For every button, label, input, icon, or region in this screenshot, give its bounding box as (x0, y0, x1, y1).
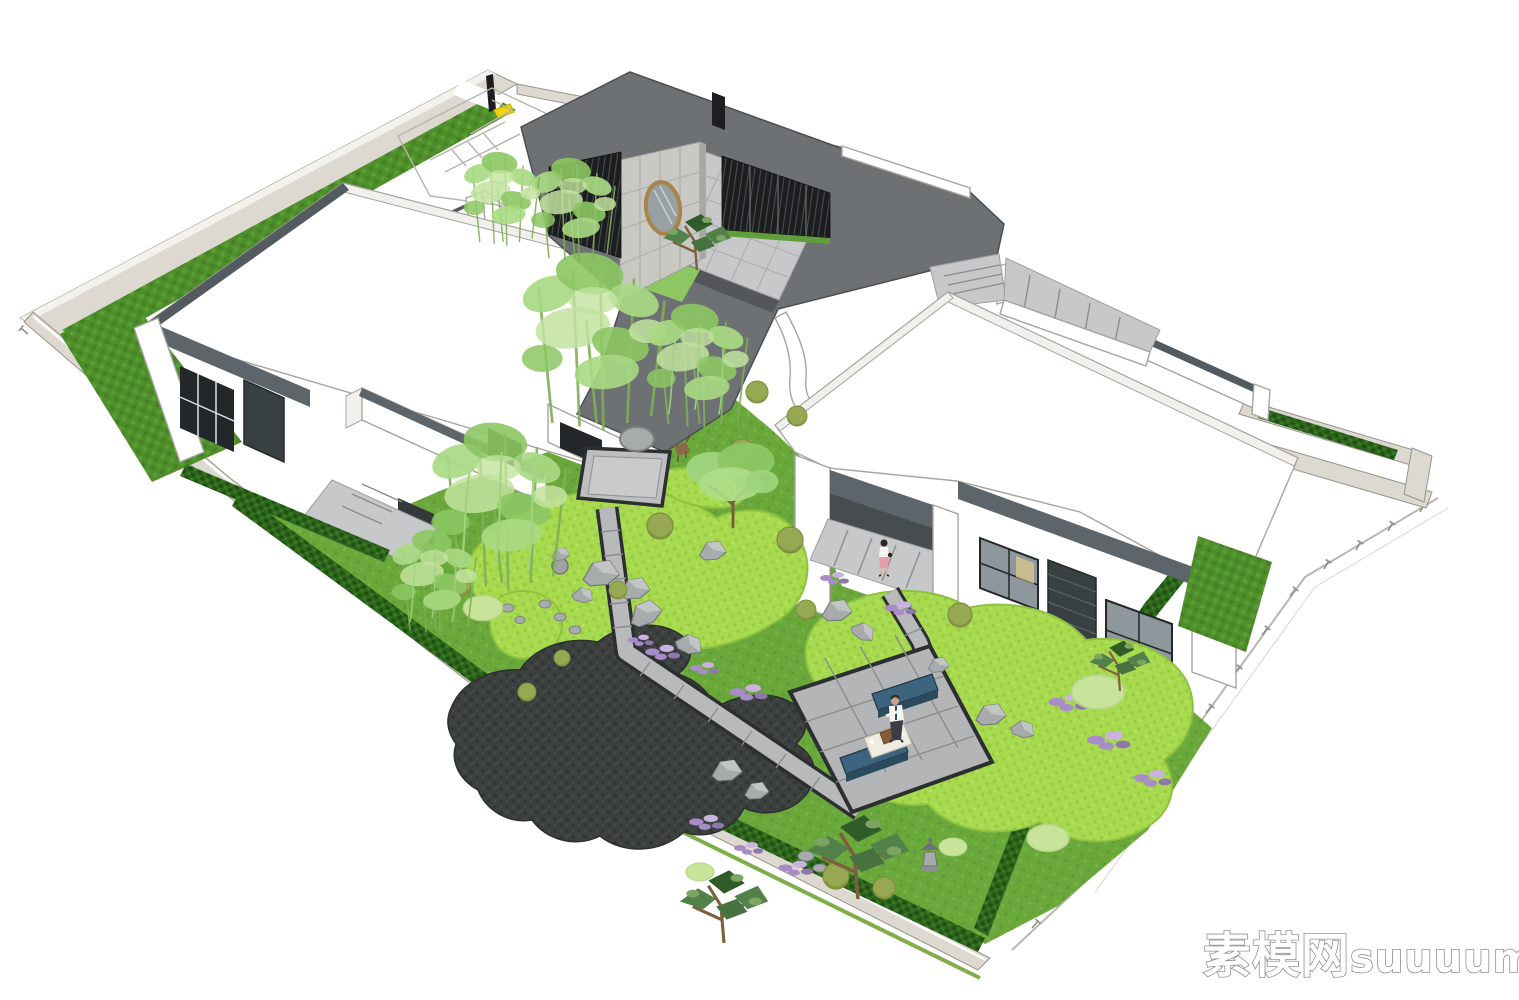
model-render: 素模网suuuum.com (0, 0, 1519, 1000)
shrub-ball (948, 603, 972, 627)
shrub-ball (873, 877, 895, 899)
fence-tick-west (19, 326, 30, 337)
shrub-ball (609, 581, 627, 599)
round-stepping-pad (620, 427, 654, 451)
shrub-ball (787, 406, 807, 426)
shrub-ball (554, 650, 570, 666)
pavilion-chimney (712, 92, 725, 130)
watermark-cn: 素模网 (1203, 928, 1350, 984)
render-canvas: 素模网suuuum.com (0, 0, 1519, 1000)
pale-mound (1071, 675, 1124, 709)
shrub-ball (647, 513, 673, 539)
watermark: 素模网suuuum.com (1203, 928, 1519, 984)
shrub-ball (518, 683, 536, 701)
watermark-latin: suuuum.com (1350, 936, 1519, 982)
stone-platform-inner (588, 456, 662, 498)
shrub-ball (777, 527, 803, 553)
pine-tree (680, 870, 768, 943)
shrub-ball (746, 381, 768, 403)
shrub-ball (796, 600, 816, 620)
pale-mound (939, 838, 967, 856)
pale-mound (1027, 825, 1069, 852)
pale-mound (686, 863, 714, 881)
